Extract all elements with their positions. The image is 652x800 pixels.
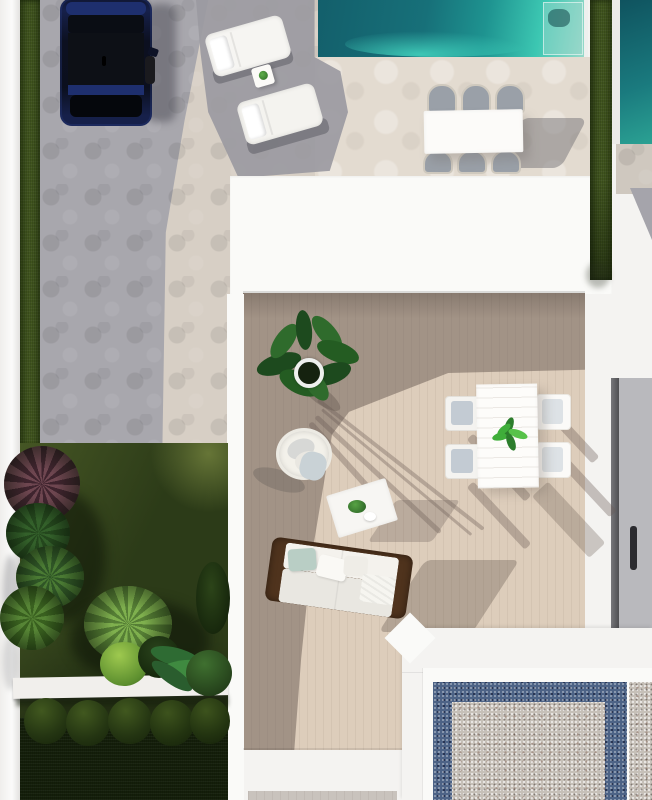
terrace-chair <box>536 442 571 478</box>
pebble-right-margin <box>629 682 652 800</box>
car-windshield <box>68 15 144 33</box>
chair-seat <box>451 449 473 473</box>
ball-hedge <box>108 698 152 744</box>
chair-seat <box>542 447 563 472</box>
right-hedge-end-shadow <box>586 262 610 288</box>
car-hood <box>66 2 146 15</box>
pool-water-highlight <box>345 31 532 57</box>
side-table-plant <box>258 70 269 81</box>
neighbour-shadow-wedge <box>630 188 652 240</box>
lawn-sunlit-corner <box>150 443 228 513</box>
pool-steps-shade <box>548 9 570 27</box>
pebble-light-center <box>452 702 605 800</box>
upper-roof-band <box>230 176 612 294</box>
coffee-table-plant <box>348 500 366 513</box>
ball-hedge <box>24 698 68 744</box>
ball-hedge <box>190 698 230 744</box>
car-rear-window <box>70 95 142 117</box>
neighbour-paving <box>616 144 652 194</box>
plant-pot <box>294 358 324 388</box>
terrace-chair <box>445 444 481 479</box>
leafy-shrub <box>186 650 232 696</box>
gravel-patio <box>402 628 652 800</box>
pool-right-coping <box>584 0 588 57</box>
dark-shrub <box>196 562 230 634</box>
deck-bottom-line <box>243 748 403 750</box>
ball-hedge <box>66 700 110 746</box>
terrace-chair <box>536 394 571 430</box>
pool-chair <box>457 150 487 174</box>
sofa-throw <box>359 573 397 605</box>
lower-paving-strip <box>248 791 397 800</box>
chair-seat <box>451 401 473 425</box>
pool-steps <box>543 2 583 55</box>
left-hedge <box>20 0 42 447</box>
car <box>60 0 152 126</box>
door-handle-slot <box>630 526 637 570</box>
car-rear-strip <box>68 85 144 95</box>
sofa-pillow-mint <box>287 548 316 572</box>
pool-dining-table <box>424 109 524 154</box>
car-wheel <box>145 56 155 84</box>
villa-aerial-render <box>0 0 652 800</box>
coffee-table-dish <box>364 512 376 521</box>
deck-top-dark-band <box>243 293 585 319</box>
neighbour-grey-wall <box>619 378 652 644</box>
table-centerpiece-plant <box>492 420 528 454</box>
potted-plant <box>258 320 358 412</box>
chair-seat <box>542 399 563 424</box>
neighbour-pool-coping <box>612 0 620 144</box>
main-pool <box>318 0 585 57</box>
ball-hedge <box>150 700 194 746</box>
car-roof <box>68 33 144 85</box>
fern-plant <box>0 586 64 650</box>
neighbour-pool <box>620 0 652 144</box>
pool-chair <box>491 150 521 174</box>
car-antenna <box>102 56 106 66</box>
